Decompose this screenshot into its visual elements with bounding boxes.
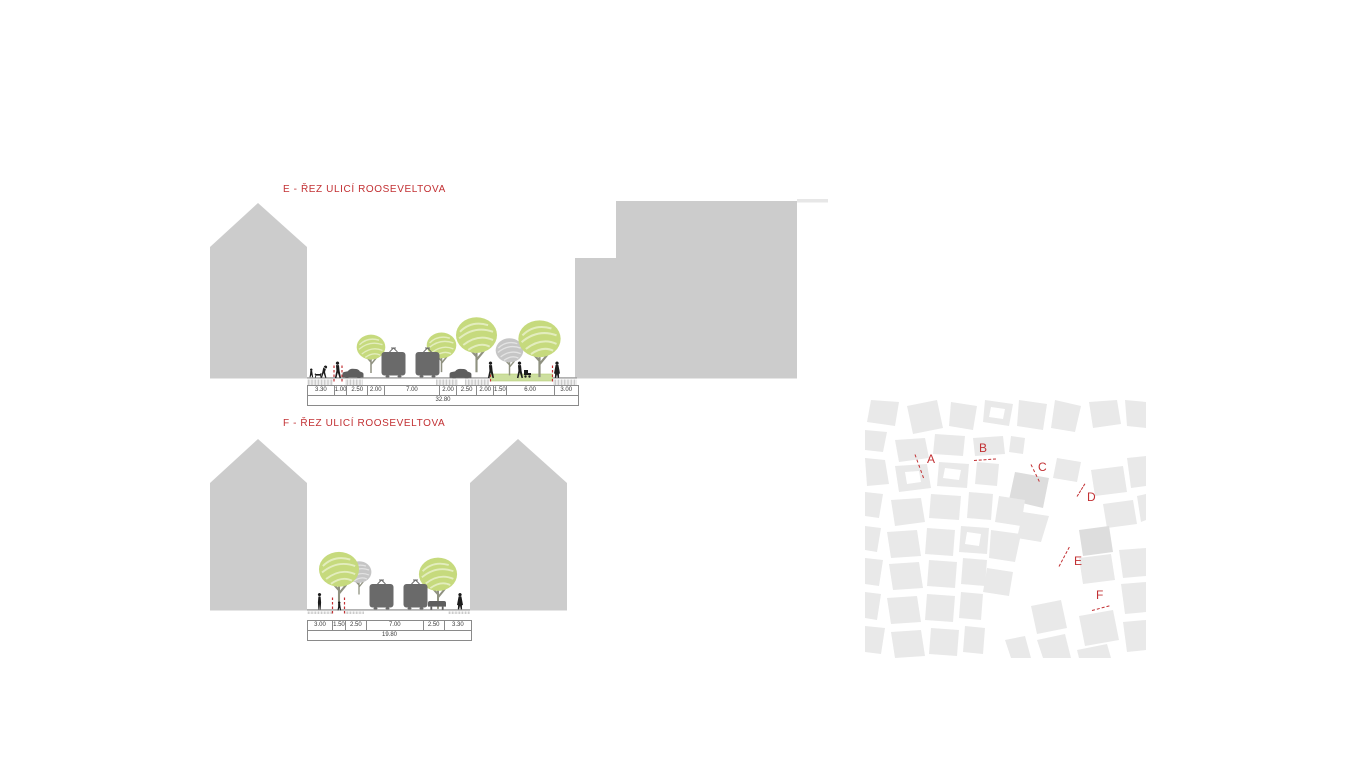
tram-icon	[382, 348, 406, 378]
person-icon	[457, 593, 463, 609]
building-right-icon	[470, 439, 567, 611]
dim-segment-value: 3.30	[308, 386, 335, 395]
dim-segment-value: 2.50	[346, 621, 367, 630]
car-icon	[343, 369, 364, 378]
dim-segment-value: 2.50	[347, 386, 368, 395]
person-icon	[318, 593, 321, 610]
tram-icon	[416, 348, 440, 378]
dim-segment-value: 7.00	[385, 386, 441, 395]
dim-segment-value: 2.00	[477, 386, 494, 395]
dim-segment-value: 7.00	[367, 621, 424, 630]
dimension-row: 3.001.502.507.002.503.30	[308, 621, 471, 630]
building-right-icon	[575, 201, 797, 379]
section-e-title: E - ŘEZ ULICÍ ROOSEVELTOVA	[283, 184, 446, 195]
person-icon	[321, 366, 327, 378]
tree-icon	[357, 335, 386, 373]
dog-icon	[315, 373, 322, 378]
tree-icon	[319, 552, 359, 606]
dimension-total: 32.80	[308, 395, 578, 405]
dim-segment-value: 2.50	[457, 386, 478, 395]
dim-segment-value: 2.50	[424, 621, 445, 630]
person-icon	[554, 362, 560, 378]
map-building-blocks	[865, 400, 1146, 658]
child-icon	[338, 602, 342, 611]
person-icon	[335, 362, 341, 379]
dim-segment-value: 3.30	[445, 621, 471, 630]
section-e-drawing	[210, 195, 830, 385]
dim-segment-value: 2.00	[368, 386, 385, 395]
dim-segment-value: 3.00	[555, 386, 578, 395]
dimension-table-e: 3.301.002.502.007.002.002.502.001.506.00…	[307, 385, 579, 406]
dimension-table-f: 3.001.502.507.002.503.30 19.80	[307, 620, 472, 641]
section-f-title: F - ŘEZ ULICÍ ROOSEVELTOVA	[283, 418, 445, 429]
location-map	[865, 400, 1146, 658]
dim-segment-value: 6.00	[507, 386, 555, 395]
dim-segment-value: 2.00	[440, 386, 457, 395]
building-left-icon	[210, 203, 307, 379]
dim-segment-value: 3.00	[308, 621, 333, 630]
dimension-total: 19.80	[308, 630, 471, 640]
car-icon	[450, 369, 472, 379]
section-f-drawing	[210, 430, 570, 614]
dimension-row: 3.301.002.502.007.002.002.502.001.506.00…	[308, 386, 578, 395]
sidewalk-hatch	[307, 612, 470, 615]
dim-segment-value: 1.50	[494, 386, 507, 395]
tram-icon	[370, 580, 394, 610]
dim-segment-value: 1.00	[335, 386, 348, 395]
roofline-extension	[797, 199, 828, 203]
drawing-sheet: E - ŘEZ ULICÍ ROOSEVELTOVA	[0, 0, 1366, 768]
tram-icon	[404, 580, 428, 610]
dim-segment-value: 1.50	[333, 621, 346, 630]
building-left-icon	[210, 439, 307, 611]
child-icon	[310, 369, 314, 378]
tree-icon	[518, 320, 560, 377]
